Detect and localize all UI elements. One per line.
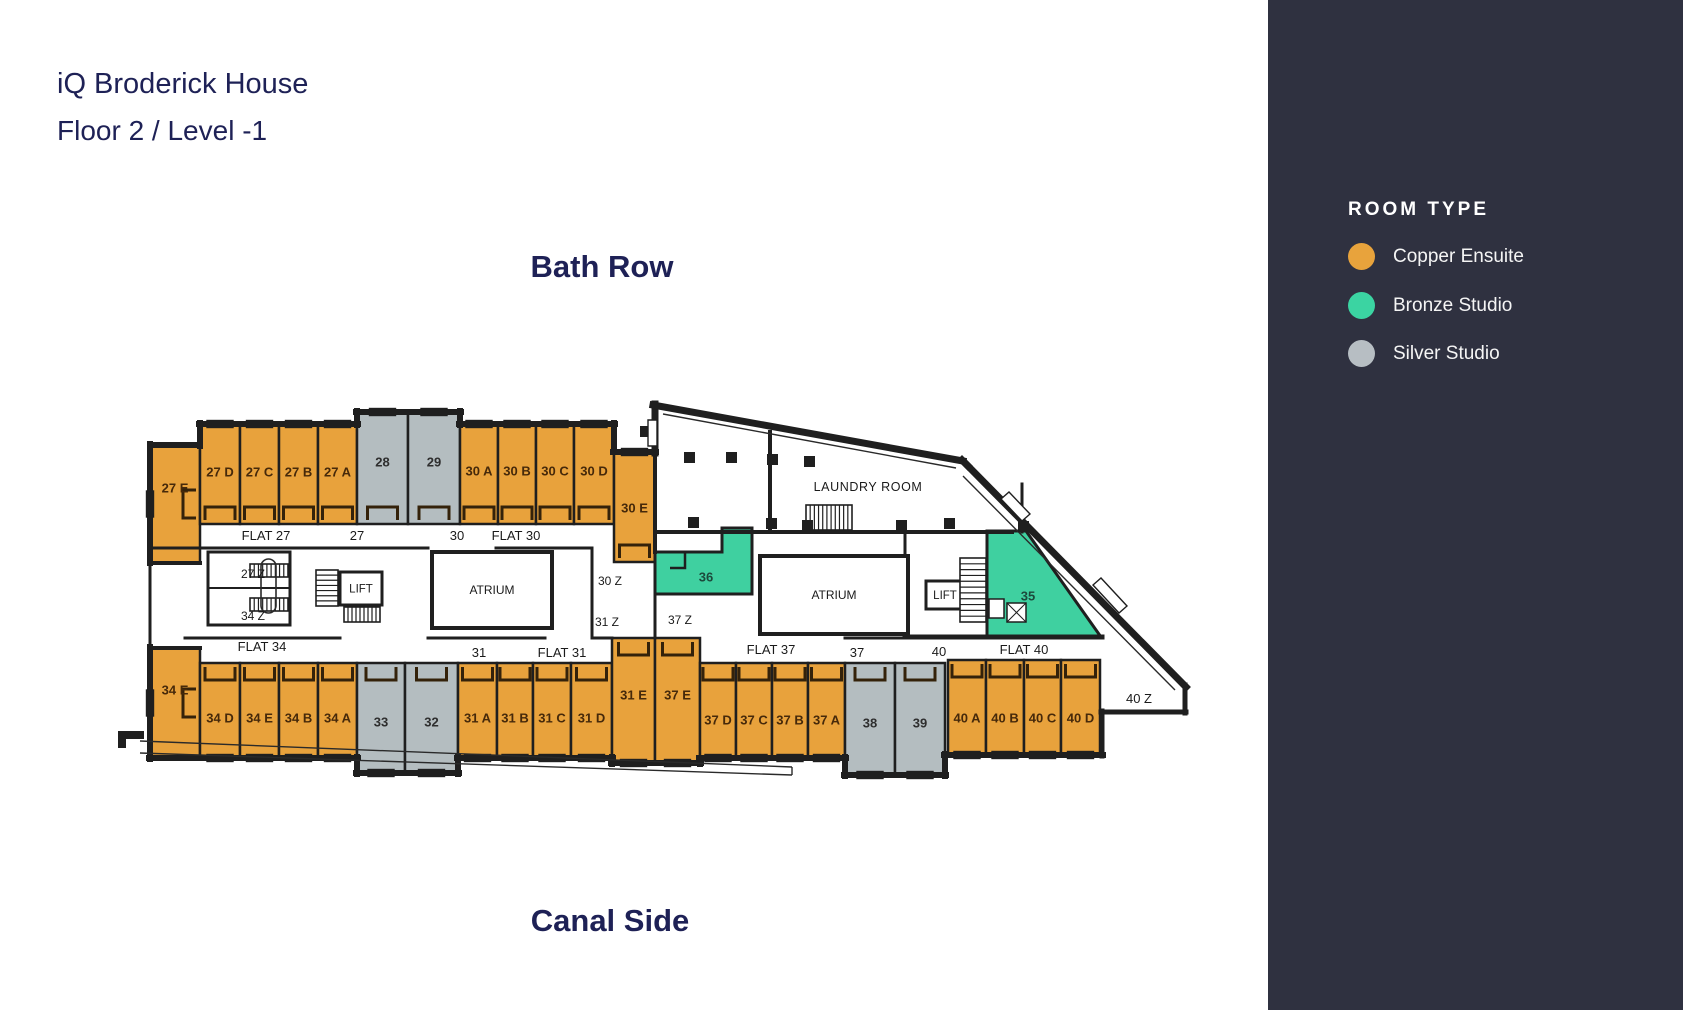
room-number-label: 29 — [427, 455, 441, 470]
room-number-label: 38 — [863, 716, 877, 731]
room-number-label: 37 D — [704, 713, 731, 728]
room-number-label: 31 B — [501, 711, 528, 726]
bathroom-fixture — [989, 599, 1004, 618]
plan-label: 27 Z — [241, 567, 265, 581]
room-27E — [150, 445, 200, 563]
legend-item-silver: Silver Studio — [1348, 340, 1500, 367]
room-number-label: 40 C — [1029, 711, 1057, 726]
plan-label: 40 — [932, 644, 946, 659]
room-40A — [948, 660, 986, 755]
legend-item-copper: Copper Ensuite — [1348, 243, 1524, 270]
plan-label: FLAT 34 — [238, 639, 287, 654]
plan-label: FLAT 27 — [242, 528, 291, 543]
plan-label: 31 — [472, 645, 486, 660]
stairs — [960, 558, 986, 622]
bronze-swatch — [1348, 292, 1375, 319]
room-number-label: 34 A — [324, 711, 352, 726]
plan-label: 27 — [350, 528, 364, 543]
atrium-label: ATRIUM — [469, 583, 514, 597]
room-number-label: 30 E — [621, 501, 648, 516]
plan-label: 30 Z — [598, 574, 622, 588]
room-number-label: 40 A — [954, 711, 982, 726]
room-40C — [1024, 660, 1061, 755]
room-number-label: 31 E — [620, 688, 647, 703]
plan-label: FLAT 31 — [538, 645, 587, 660]
room-number-label: 31 D — [578, 711, 605, 726]
room-number-label: 37 E — [664, 688, 691, 703]
lift-label: LIFT — [933, 590, 957, 602]
plan-label: 37 Z — [668, 613, 692, 627]
room-number-label: 37 C — [740, 713, 768, 728]
legend-sidebar: ROOM TYPE Copper Ensuite Bronze Studio S… — [1268, 0, 1683, 1010]
room-number-label: 27 A — [324, 465, 352, 480]
room-number-label: 32 — [424, 715, 438, 730]
column — [802, 520, 813, 531]
lift-label: LIFT — [349, 584, 373, 596]
room-number-label: 31 C — [538, 711, 566, 726]
column — [688, 517, 699, 528]
room-37D — [700, 663, 736, 758]
legend-item-bronze: Bronze Studio — [1348, 292, 1512, 319]
column — [944, 518, 955, 529]
column — [726, 452, 737, 463]
room-number-label: 27 E — [162, 481, 189, 496]
column — [1018, 521, 1029, 532]
room-number-label: 30 C — [541, 464, 569, 479]
plan-label: 31 Z — [595, 615, 619, 629]
column — [684, 452, 695, 463]
room-37B — [772, 663, 808, 758]
room-number-label: 37 B — [776, 713, 803, 728]
room-40B — [986, 660, 1024, 755]
room-number-label: 33 — [374, 715, 388, 730]
room-number-label: 37 A — [813, 713, 841, 728]
legend-heading: ROOM TYPE — [1348, 199, 1489, 221]
plan-label: 37 — [850, 645, 864, 660]
plan-label: 34 Z — [241, 609, 265, 623]
room-number-label: 30 D — [580, 464, 607, 479]
room-number-label: 39 — [913, 716, 927, 731]
legend-label-copper: Copper Ensuite — [1393, 246, 1524, 268]
plan-label: 40 Z — [1126, 691, 1152, 706]
plan-label: 30 — [450, 528, 464, 543]
room-number-label: 34 E — [246, 711, 273, 726]
room-number-label: 28 — [375, 455, 389, 470]
room-number-label: 31 A — [464, 711, 492, 726]
room-number-label: 27 C — [246, 465, 274, 480]
room-number-label: 40 D — [1067, 711, 1094, 726]
column — [767, 454, 778, 465]
room-number-label: 30 B — [503, 464, 530, 479]
plan-label: LAUNDRY ROOM — [814, 480, 923, 494]
room-37C — [736, 663, 772, 758]
room-number-label: 36 — [699, 570, 713, 585]
column — [896, 520, 907, 531]
room-number-label: 35 — [1021, 589, 1035, 604]
floorplan-page: iQ Broderick House Floor 2 / Level -1 Ba… — [0, 0, 1683, 1010]
copper-swatch — [1348, 243, 1375, 270]
column — [804, 456, 815, 467]
room-number-label: 34 D — [206, 711, 233, 726]
room-number-label: 27 B — [285, 465, 312, 480]
room-number-label: 34 B — [285, 711, 312, 726]
plan-label: FLAT 30 — [492, 528, 541, 543]
room-number-label: 40 B — [991, 711, 1018, 726]
legend-label-bronze: Bronze Studio — [1393, 295, 1512, 317]
room-number-label: 30 A — [466, 464, 494, 479]
room-number-label: 27 D — [206, 465, 233, 480]
balcony-block — [118, 731, 126, 748]
window-mark — [648, 420, 657, 446]
stairs — [344, 607, 380, 622]
plan-label: FLAT 40 — [1000, 642, 1049, 657]
legend-label-silver: Silver Studio — [1393, 343, 1500, 365]
atrium-label: ATRIUM — [811, 588, 856, 602]
plan-label: FLAT 37 — [747, 642, 796, 657]
wall — [653, 405, 963, 461]
room-37A — [808, 663, 845, 758]
column — [766, 518, 777, 529]
silver-swatch — [1348, 340, 1375, 367]
room-number-label: 34 E — [162, 683, 189, 698]
